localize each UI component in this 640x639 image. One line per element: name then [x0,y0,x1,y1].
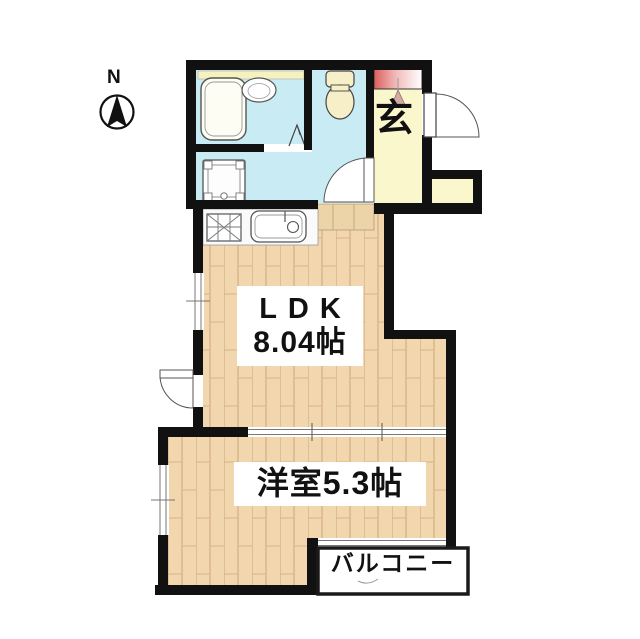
western-room-label: 洋室5.3帖 [234,462,426,506]
toilet-icon [326,71,354,119]
ldk-door-icon [160,370,193,408]
washing-machine-icon [203,160,245,202]
gas-stove-icon [207,214,241,241]
kitchen-sink-icon [251,211,306,242]
north-compass-icon [101,95,134,129]
bathtub-icon [201,78,246,140]
ldk-name-text: LDK [259,294,352,324]
floor-plan-image: N 玄 LDK 8.04帖 洋室5.3帖 バルコニー [0,0,640,639]
washbasin-icon [242,78,276,102]
ldk-size-text: 8.04帖 [253,327,346,359]
entrance-door-icon [424,93,479,137]
entrance-label: 玄 [375,100,413,140]
entrance-step [312,204,374,230]
compass-north-label: N [107,68,121,88]
ldk-label: LDK 8.04帖 [237,286,363,366]
balcony-label: バルコニー [318,551,468,575]
